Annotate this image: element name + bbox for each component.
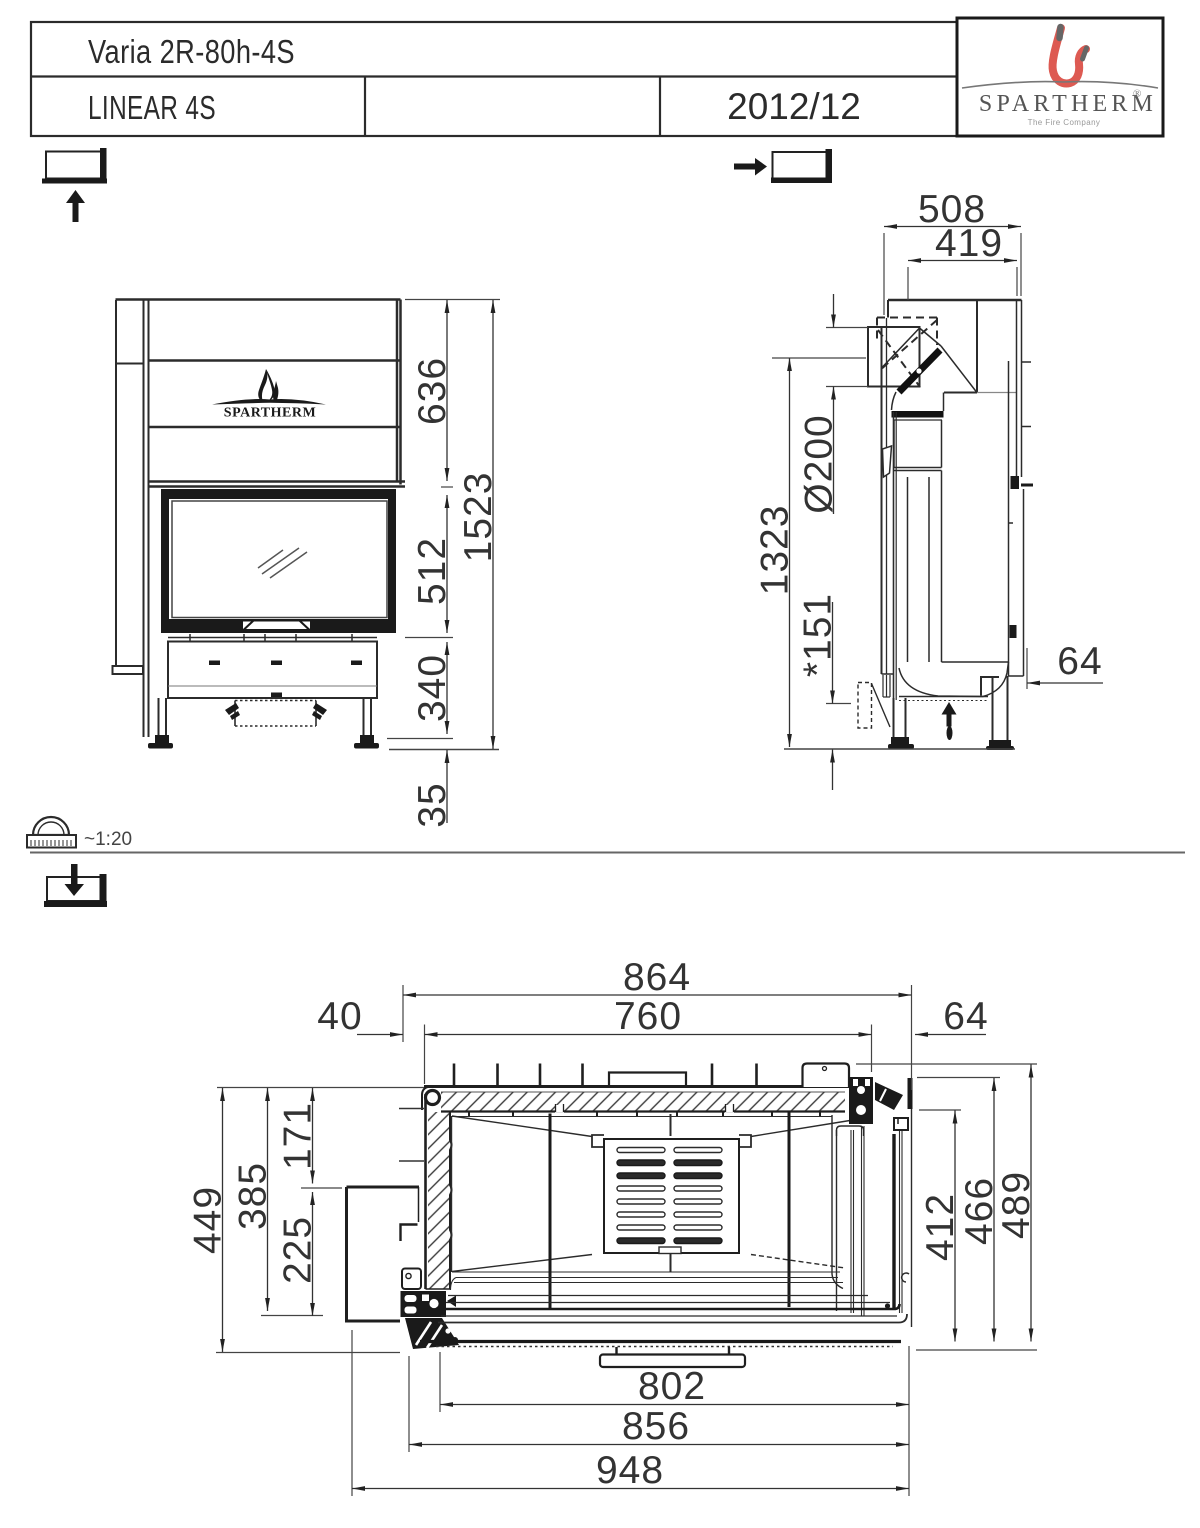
svg-text:40: 40 (317, 995, 362, 1038)
svg-text:35: 35 (411, 782, 454, 827)
svg-text:419: 419 (935, 222, 1003, 265)
svg-text:449: 449 (187, 1186, 230, 1254)
svg-text:225: 225 (277, 1216, 320, 1284)
svg-text:®: ® (1133, 88, 1141, 100)
svg-text:412: 412 (919, 1193, 962, 1261)
svg-text:SPARTHERM: SPARTHERM (979, 91, 1157, 117)
svg-text:Varia 2R-80h-4S: Varia 2R-80h-4S (88, 33, 295, 70)
svg-text:636: 636 (411, 357, 454, 425)
svg-text:1523: 1523 (457, 472, 500, 563)
svg-text:Ø200: Ø200 (798, 414, 841, 513)
svg-text:~1:20: ~1:20 (84, 829, 132, 850)
svg-text:64: 64 (1057, 640, 1102, 683)
svg-text:SPARTHERM: SPARTHERM (224, 406, 316, 421)
svg-text:The Fire Company: The Fire Company (1028, 118, 1101, 127)
svg-text:760: 760 (614, 995, 682, 1038)
svg-text:171: 171 (277, 1102, 320, 1170)
svg-text:340: 340 (411, 654, 454, 722)
svg-text:489: 489 (995, 1171, 1038, 1239)
svg-text:864: 864 (623, 956, 691, 999)
svg-text:512: 512 (411, 537, 454, 605)
svg-text:948: 948 (596, 1449, 664, 1492)
svg-text:*151: *151 (797, 593, 840, 677)
svg-text:LINEAR 4S: LINEAR 4S (88, 89, 216, 126)
svg-text:385: 385 (232, 1162, 275, 1230)
svg-text:64: 64 (943, 995, 988, 1038)
svg-text:2012/12: 2012/12 (727, 86, 861, 127)
svg-text:802: 802 (638, 1365, 706, 1408)
svg-text:856: 856 (622, 1405, 690, 1448)
svg-text:1323: 1323 (754, 505, 797, 596)
